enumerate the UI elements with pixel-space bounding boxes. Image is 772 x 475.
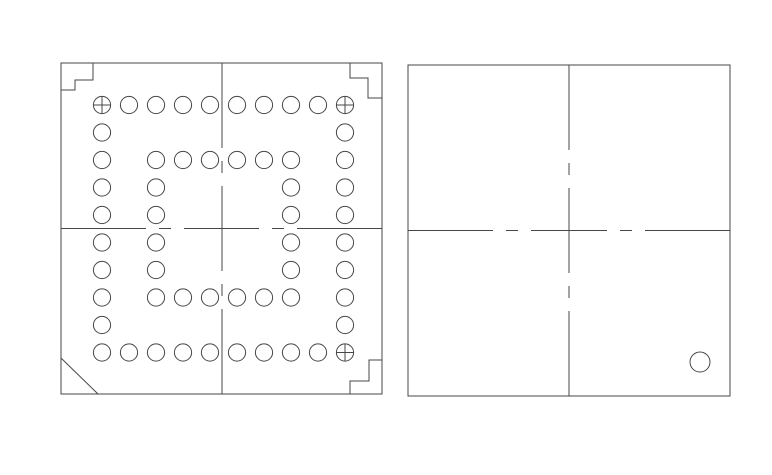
solder-ball-r6c8 — [282, 234, 299, 251]
solder-ball-r8c4 — [174, 289, 191, 306]
solder-ball-r5c10 — [336, 206, 353, 223]
solder-ball-r10c6 — [228, 344, 245, 361]
solder-ball-r2c10 — [336, 124, 353, 141]
solder-ball-r8c1 — [93, 289, 110, 306]
solder-ball-r10c5 — [201, 344, 218, 361]
solder-ball-r7c1 — [93, 261, 110, 278]
solder-ball-r10c8 — [282, 344, 299, 361]
solder-ball-r3c3 — [147, 151, 164, 168]
pin1-corner-chamfer — [61, 358, 98, 394]
solder-ball-r10c4 — [174, 344, 191, 361]
bottom-right-corner-step — [350, 360, 382, 394]
solder-ball-r3c10 — [336, 151, 353, 168]
solder-ball-r3c7 — [255, 151, 272, 168]
solder-ball-r7c8 — [282, 261, 299, 278]
solder-ball-r6c3 — [147, 234, 164, 251]
bottom-view — [408, 65, 730, 396]
solder-ball-r10c1 — [93, 344, 110, 361]
bottom-view-corner-circle — [690, 352, 710, 372]
solder-ball-r6c1 — [93, 234, 110, 251]
solder-ball-r5c3 — [147, 206, 164, 223]
solder-ball-r1c3 — [147, 96, 164, 113]
solder-ball-r9c1 — [93, 316, 110, 333]
solder-ball-r1c9 — [309, 96, 326, 113]
solder-ball-r4c1 — [93, 179, 110, 196]
solder-ball-r4c10 — [336, 179, 353, 196]
solder-ball-r9c10 — [336, 316, 353, 333]
solder-ball-r3c4 — [174, 151, 191, 168]
solder-ball-r10c9 — [309, 344, 326, 361]
solder-ball-r4c3 — [147, 179, 164, 196]
solder-ball-r8c10 — [336, 289, 353, 306]
solder-ball-r8c7 — [255, 289, 272, 306]
solder-ball-r2c1 — [93, 124, 110, 141]
solder-ball-r6c10 — [336, 234, 353, 251]
solder-ball-r1c6 — [228, 96, 245, 113]
solder-ball-r8c3 — [147, 289, 164, 306]
solder-ball-r3c6 — [228, 151, 245, 168]
solder-ball-r7c3 — [147, 261, 164, 278]
solder-ball-r5c1 — [93, 206, 110, 223]
top-left-corner-step — [61, 63, 93, 90]
solder-ball-r8c5 — [201, 289, 218, 306]
solder-ball-r3c8 — [282, 151, 299, 168]
solder-ball-r3c1 — [93, 151, 110, 168]
solder-ball-r8c6 — [228, 289, 245, 306]
package-drawing-figure — [0, 0, 772, 475]
solder-ball-r8c8 — [282, 289, 299, 306]
solder-ball-r1c7 — [255, 96, 272, 113]
solder-ball-r10c3 — [147, 344, 164, 361]
solder-ball-r1c4 — [174, 96, 191, 113]
solder-ball-r1c2 — [120, 96, 137, 113]
solder-ball-r3c5 — [201, 151, 218, 168]
solder-ball-r7c10 — [336, 261, 353, 278]
solder-ball-r1c8 — [282, 96, 299, 113]
solder-ball-r1c5 — [201, 96, 218, 113]
package-drawing-svg — [0, 0, 772, 475]
solder-ball-r10c2 — [120, 344, 137, 361]
top-view — [61, 63, 382, 394]
top-right-corner-step — [350, 63, 382, 98]
solder-ball-r10c7 — [255, 344, 272, 361]
solder-ball-r4c8 — [282, 179, 299, 196]
solder-ball-r5c8 — [282, 206, 299, 223]
